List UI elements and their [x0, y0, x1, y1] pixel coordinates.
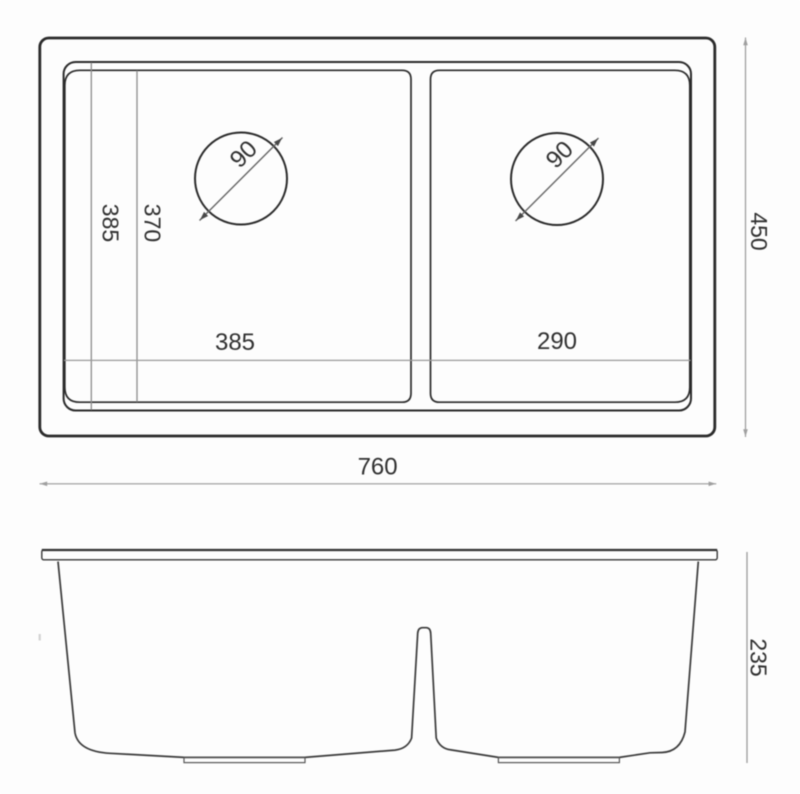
svg-text:760: 760 [358, 454, 398, 481]
svg-text:290: 290 [537, 328, 577, 355]
svg-text:450: 450 [746, 212, 772, 250]
svg-text:370: 370 [140, 204, 166, 242]
svg-text:385: 385 [215, 329, 255, 356]
svg-text:385: 385 [98, 204, 124, 242]
svg-text:235: 235 [746, 638, 772, 676]
